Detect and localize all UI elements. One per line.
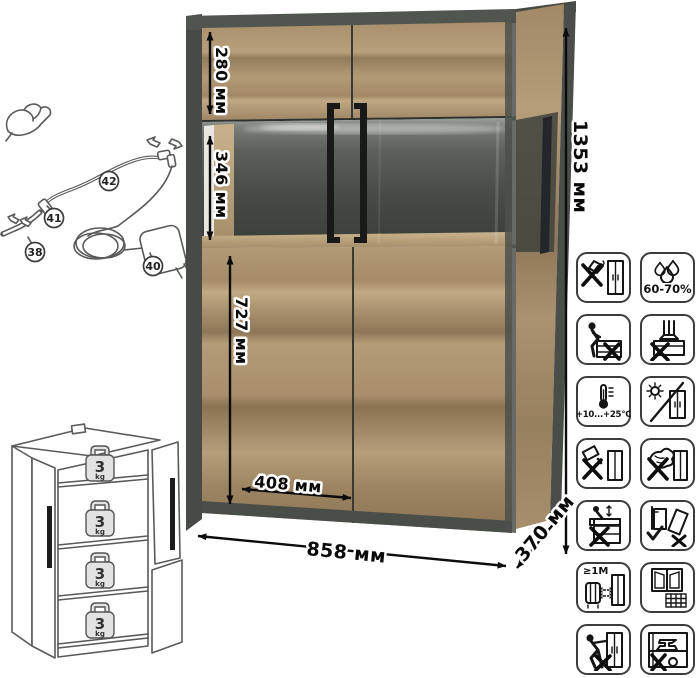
dim-height: 1353 мм <box>569 120 591 213</box>
furniture-dimension-sheet: 42 41 38 40 <box>0 0 700 678</box>
icon-temperature-range: +10...+25°C <box>576 376 631 427</box>
dim-top-section: 280 мм <box>212 47 231 115</box>
temperature-label: +10...+25°C <box>576 411 631 420</box>
cabinet-glass-section <box>202 116 516 248</box>
no-spilling-icon <box>581 443 627 485</box>
weight-unit: kg <box>95 473 105 481</box>
icon-no-direct-sunlight <box>640 376 695 427</box>
humidity-label: 60-70% <box>643 284 691 296</box>
icon-no-sharp-tools <box>576 252 631 303</box>
icon-no-heavy-items <box>640 624 695 675</box>
icon-no-climbing <box>576 500 631 551</box>
thermometer-icon <box>581 384 627 410</box>
no-dragging-icon <box>581 629 627 671</box>
icon-no-abrasive-cleaners <box>640 438 695 489</box>
open-cabinet-diagram: 3 kg 3 kg 3 kg 3 kg <box>0 420 195 678</box>
icon-ventilate-room <box>640 562 695 613</box>
care-icon-grid: 60-70% <box>576 252 695 675</box>
icon-no-standing <box>640 314 695 365</box>
icon-anchor-to-wall <box>640 500 695 551</box>
icon-humidity-range: 60-70% <box>640 252 695 303</box>
no-sunlight-icon <box>645 381 691 423</box>
dim-bottom-section: 727 мм <box>232 297 251 365</box>
icon-heat-source-distance: ≥1M <box>576 562 631 613</box>
dim-width: 858 мм <box>306 538 388 568</box>
wall-anchor-icon <box>645 505 691 547</box>
weight-unit: kg <box>95 528 105 536</box>
icon-no-dragging <box>576 624 631 675</box>
no-heavy-items-icon <box>645 629 691 671</box>
icon-no-sitting <box>576 314 631 365</box>
weight-unit: kg <box>95 630 105 638</box>
dim-glass-section: 346 мм <box>212 151 231 219</box>
water-drops-icon <box>645 259 691 283</box>
distance-label: ≥1M <box>583 567 608 577</box>
weight-unit: kg <box>95 580 105 588</box>
no-sharp-tools-icon <box>581 257 627 299</box>
no-standing-icon <box>645 319 691 361</box>
open-window-icon <box>645 567 691 609</box>
no-sitting-icon <box>581 319 627 361</box>
no-abrasive-icon <box>645 443 691 485</box>
icon-no-spilling-liquids <box>576 438 631 489</box>
no-climbing-icon <box>581 505 627 547</box>
